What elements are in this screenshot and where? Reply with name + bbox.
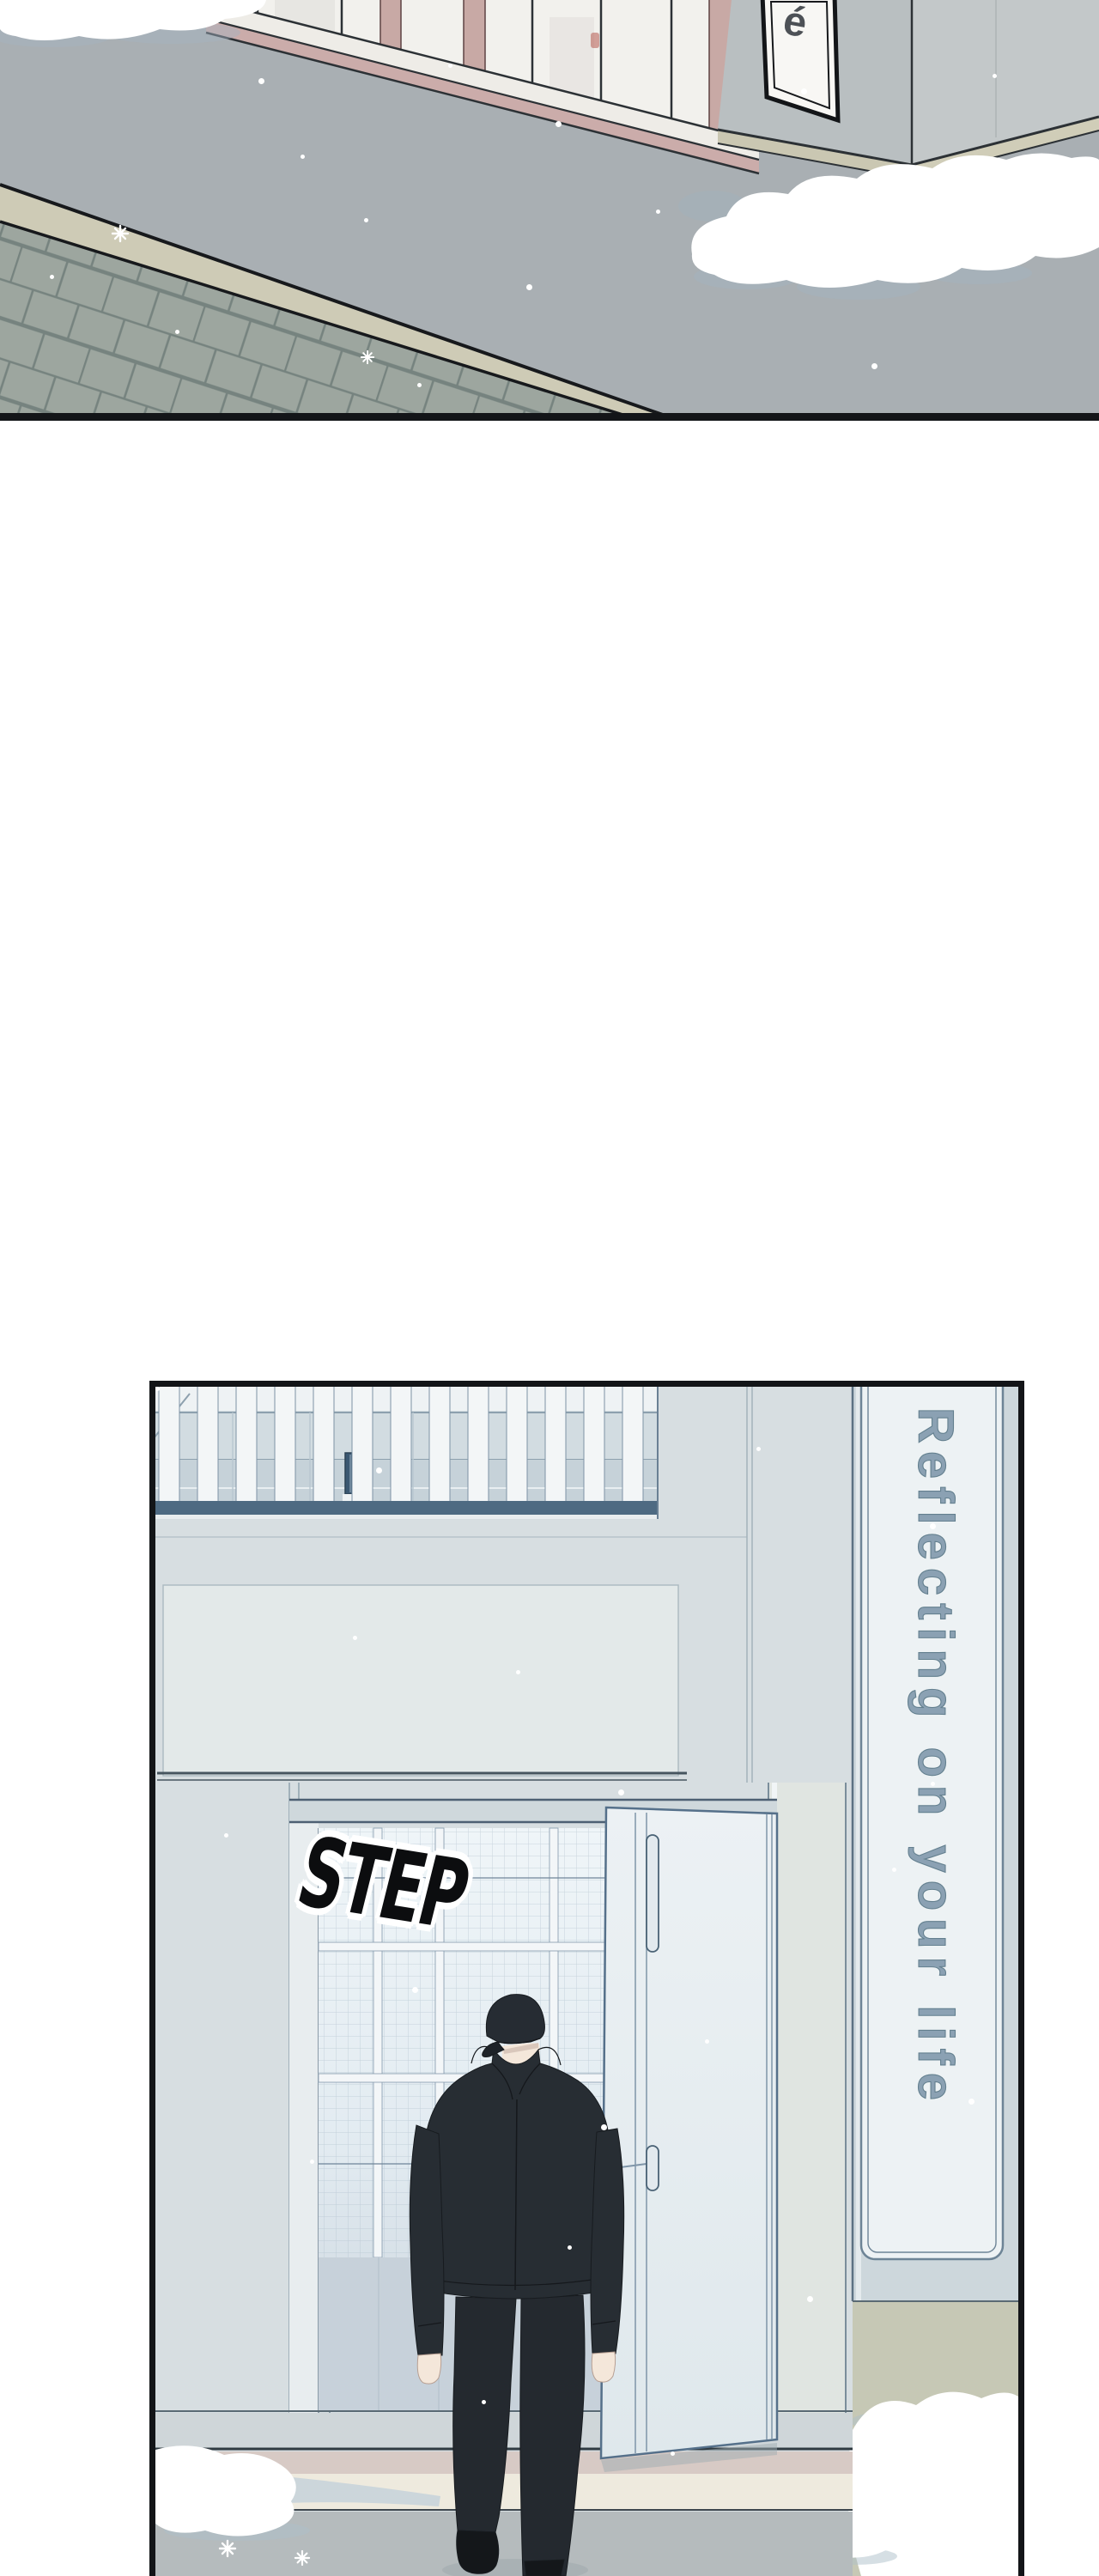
panel-border-bottom [0, 413, 1099, 421]
storefront-art [155, 1387, 1018, 2576]
falling-snow-dots [0, 0, 4, 4]
street-scene-art: é [0, 0, 1099, 421]
top-railing [155, 1387, 658, 1519]
panel-storefront-scene: Reflecting on your life STEP [149, 1381, 1024, 2576]
hand [417, 2354, 440, 2384]
vertical-sign-text: Reflecting on your life [904, 1407, 966, 2257]
door-handle [647, 1835, 659, 1952]
shoe [457, 2530, 499, 2573]
fascia-signboard [157, 1585, 687, 1780]
falling-snow-dots [155, 1387, 160, 1391]
open-door [601, 1807, 777, 2472]
webtoon-page: é [0, 0, 1099, 2576]
panel-street-scene: é [0, 0, 1099, 421]
